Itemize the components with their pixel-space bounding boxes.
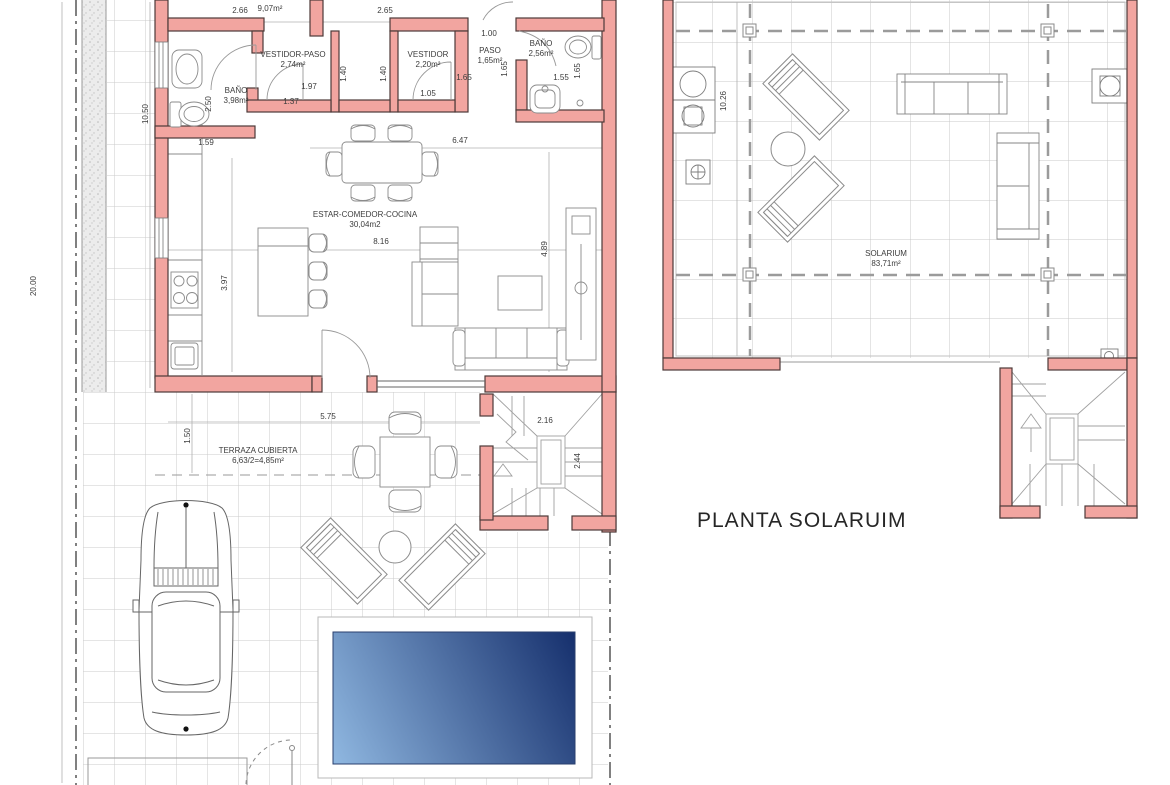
bar-stool — [309, 290, 327, 308]
room-name: BAÑO — [529, 39, 554, 49]
room-area: 2,74m² — [260, 60, 325, 70]
pergola-post — [1041, 24, 1054, 37]
dim-dressing-depth: 1.05 — [420, 89, 436, 99]
dim-room2-width: 2.65 — [377, 6, 393, 16]
dim-bath2-width: 1.55 — [553, 73, 569, 83]
plan-title: PLANTA SOLARUIM — [697, 509, 907, 533]
dim-living-top-width: 6.47 — [452, 136, 468, 146]
room-label-solarium: SOLARIUM 83,71m² — [865, 249, 907, 269]
room-label-dressing: VESTIDOR 2,20m² — [408, 50, 449, 70]
bar-stool — [309, 262, 327, 280]
room-name: SOLARIUM — [865, 249, 907, 259]
plot-boundary-strip — [82, 0, 106, 392]
dim-room1-width: 2.66 — [232, 6, 248, 16]
floorplan-canvas: 2.66 9,07m² 2.65 1.00 BAÑO 3,98m² 2.50 1… — [0, 0, 1170, 785]
room-label-bathroom1: BAÑO 3,98m² — [224, 86, 249, 106]
room-name: PASO — [478, 46, 503, 56]
solarium-sofa-top — [897, 74, 1007, 114]
dim-plot-height: 20.00 — [29, 276, 39, 296]
solarium-round-table — [771, 132, 805, 166]
dim-living-depth: 4.89 — [540, 241, 550, 257]
dim-dressing-hall-w2: 1.37 — [283, 97, 299, 107]
dim-stair-width: 2.16 — [537, 416, 553, 426]
dim-terrace-width: 5.75 — [320, 412, 336, 422]
dim-closet2-depth: 1.40 — [379, 66, 389, 82]
room-name: BAÑO — [224, 86, 249, 96]
room-area: 3,98m² — [224, 96, 249, 106]
pool-side-table — [379, 531, 411, 563]
dim-kitchen-depth: 3.97 — [220, 275, 230, 291]
dim-stair-depth: 2.44 — [573, 453, 583, 469]
pergola-post — [743, 24, 756, 37]
swimming-pool — [318, 617, 592, 778]
room-area: 6,63/2=4,85m² — [219, 456, 298, 466]
car-top-view — [133, 501, 239, 736]
dim-hall-top-width: 1.00 — [481, 29, 497, 39]
room-label-hall: PASO 1,65m² — [478, 46, 503, 66]
room-area: 30,04m2 — [313, 220, 417, 230]
dim-bath1-height: 2.50 — [204, 96, 214, 112]
bar-stool — [309, 234, 327, 252]
dim-living-width: 8.16 — [373, 237, 389, 247]
dim-closet1-depth: 1.40 — [339, 66, 349, 82]
room-name: VESTIDOR-PASO — [260, 50, 325, 60]
dim-dressing-hall-w1: 1.97 — [301, 82, 317, 92]
room-area: 2,56m² — [529, 49, 554, 59]
dim-terrace-depth: 1.50 — [183, 428, 193, 444]
room-area: 1,65m² — [478, 56, 503, 66]
tv-sideboard — [566, 208, 596, 360]
dim-dressing-width: 1.65 — [456, 73, 472, 83]
dim-bath1-width: 1.59 — [198, 138, 214, 148]
dim-solarium-side: 10.26 — [719, 91, 729, 111]
room-label-bathroom2: BAÑO 2,56m² — [529, 39, 554, 59]
room-label-dressing-hall: VESTIDOR-PASO 2,74m² — [260, 50, 325, 70]
solarium-sofa-right — [997, 133, 1039, 239]
room-name: ESTAR-COMEDOR-COCINA — [313, 210, 417, 220]
pergola-post — [1041, 268, 1054, 281]
floor-plan-drawing — [0, 0, 1170, 785]
solarium-tile-grid — [673, 0, 1127, 358]
room-label-living: ESTAR-COMEDOR-COCINA 30,04m2 — [313, 210, 417, 230]
pergola-post — [743, 268, 756, 281]
room-area: 83,71m² — [865, 259, 907, 269]
dim-bath2-depth: 1.65 — [573, 63, 583, 79]
dim-hall-depth: 1.65 — [500, 61, 510, 77]
kitchen-island — [258, 228, 308, 316]
room-name: TERRAZA CUBIERTA — [219, 446, 298, 456]
room-label-terrace: TERRAZA CUBIERTA 6,63/2=4,85m² — [219, 446, 298, 466]
dim-room1-area: 9,07m² — [258, 4, 283, 14]
room-area: 2,20m² — [408, 60, 449, 70]
dim-plot-side: 10.50 — [141, 104, 151, 124]
room-name: VESTIDOR — [408, 50, 449, 60]
